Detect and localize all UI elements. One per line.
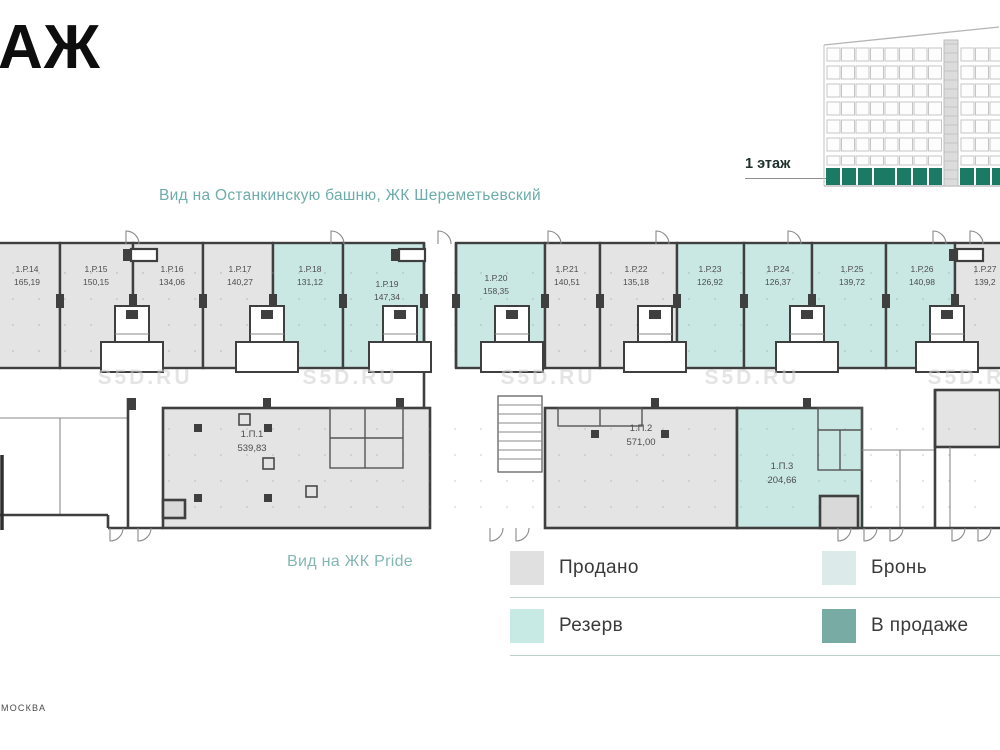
unit-label: 1.Р.16 [161, 264, 184, 274]
footer-city: МОСКВА [1, 703, 46, 713]
legend-swatch-sold [510, 551, 544, 585]
unit-label: 1.Р.22 [625, 264, 648, 274]
unit-label: 1.Р.17 [229, 264, 252, 274]
unit-area: 147,34 [374, 292, 400, 302]
watermark: S5D.RU [302, 366, 397, 389]
unit-area: 140,98 [909, 277, 935, 287]
unit-label: 1.Р.19 [376, 279, 399, 289]
unit-label: 1.Р.21 [556, 264, 579, 274]
unit-label: 1.Р.27 [974, 264, 997, 274]
unit-area: 158,35 [483, 286, 509, 296]
unit-label: 1.Р.14 [16, 264, 39, 274]
legend-item-booking: Бронь [822, 551, 1000, 598]
legend-label: Продано [559, 557, 639, 579]
unit-area: 139,2 [974, 277, 996, 287]
unit-area: 140,27 [227, 277, 253, 287]
unit-area: 139,72 [839, 277, 865, 287]
unit-label: 1.Р.15 [85, 264, 108, 274]
watermark: S5D.RU [704, 366, 799, 389]
unit-label: 1.Р.26 [911, 264, 934, 274]
floor-plan-page: АЖ Вид на Останкинскую башню, ЖК Шеремет… [0, 0, 1000, 750]
unit-label: 1.Р.18 [299, 264, 322, 274]
view-caption-bottom: Вид на ЖК Pride [240, 553, 460, 571]
legend-swatch-booking [822, 551, 856, 585]
unit-area: 150,15 [83, 277, 109, 287]
unit-area: 134,06 [159, 277, 185, 287]
legend-label: Резерв [559, 615, 623, 637]
legend-right-column: Бронь В продаже [822, 551, 1000, 667]
unit-area: 135,18 [623, 277, 649, 287]
unit-area: 140,51 [554, 277, 580, 287]
unit-label: 1.Р.20 [485, 273, 508, 283]
unit-label: 1.П.2 [630, 423, 653, 434]
unit-area: 571,00 [626, 437, 655, 448]
ceiling-grid-dots-bottom [163, 412, 1000, 524]
unit-area: 126,37 [765, 277, 791, 287]
legend-swatch-on-sale [822, 609, 856, 643]
unit-area: 126,92 [697, 277, 723, 287]
unit-label: 1.Р.24 [767, 264, 790, 274]
unit-label: 1.П.3 [771, 461, 794, 472]
unit-label: 1.П.1 [241, 429, 264, 440]
legend-label: В продаже [871, 615, 969, 637]
watermark: S5D.RU [500, 366, 595, 389]
watermarks: S5D.RU S5D.RU S5D.RU S5D.RU S5D.RU [97, 366, 1000, 389]
unit-label: 1.Р.23 [699, 264, 722, 274]
legend-label: Бронь [871, 557, 927, 579]
unit-area: 539,83 [237, 443, 266, 454]
unit-area: 131,12 [297, 277, 323, 287]
unit-label: 1.Р.25 [841, 264, 864, 274]
watermark: S5D.RU [927, 366, 1000, 389]
unit-area: 204,66 [767, 475, 796, 486]
unit-area: 165,19 [14, 277, 40, 287]
legend-swatch-reserve [510, 609, 544, 643]
legend-item-on-sale: В продаже [822, 609, 1000, 656]
watermark: S5D.RU [97, 366, 192, 389]
